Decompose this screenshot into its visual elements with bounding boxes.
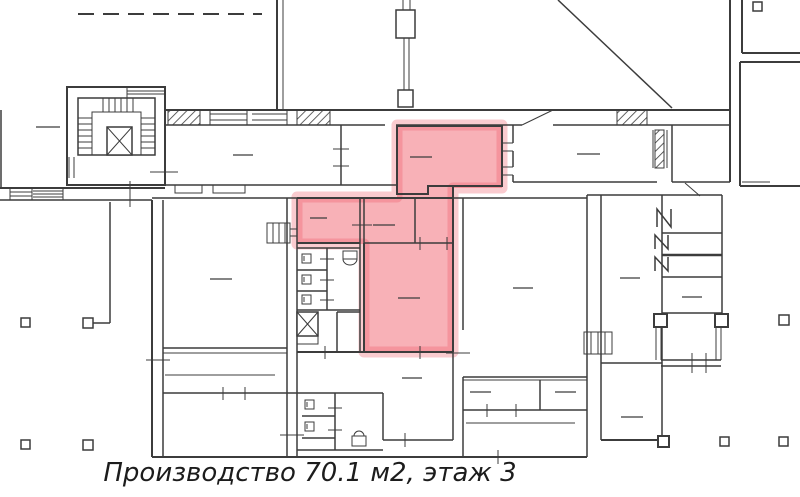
wall [685,183,700,196]
toilet-fixture [302,275,311,284]
column [654,314,667,327]
structure-outline [352,436,366,446]
toilet-fixture [302,254,311,263]
detail-path [343,259,357,265]
column [753,2,762,11]
column [720,437,729,446]
detail-path [354,431,364,436]
detail-path [657,209,671,227]
selected-production-area [297,125,502,352]
wall [558,0,672,108]
structure-outline [213,185,245,193]
column [21,440,30,449]
column [658,436,669,447]
hatched-wall [168,110,200,125]
hatched-wall [617,110,647,125]
column [21,318,30,327]
structure-outline [398,90,413,107]
hatched-wall [655,130,664,168]
structure-outline [343,251,357,259]
fixtures-layer [302,254,314,431]
structure-outline [297,336,318,344]
wall [522,110,553,125]
caption: Производство 70.1 м2, этаж 3 [103,458,516,488]
hatched-wall [297,110,330,125]
column [83,318,93,328]
floor-plan-svg [0,0,800,497]
highlight-layer [297,125,502,352]
floor-plan-container: Производство 70.1 м2, этаж 3 [0,0,800,497]
column [83,440,93,450]
toilet-fixture [305,400,314,409]
column [779,315,789,325]
toilet-fixture [305,422,314,431]
toilet-fixture [302,295,311,304]
structure-outline [396,10,415,38]
column [779,437,788,446]
column [715,314,728,327]
structure-outline [175,185,202,193]
